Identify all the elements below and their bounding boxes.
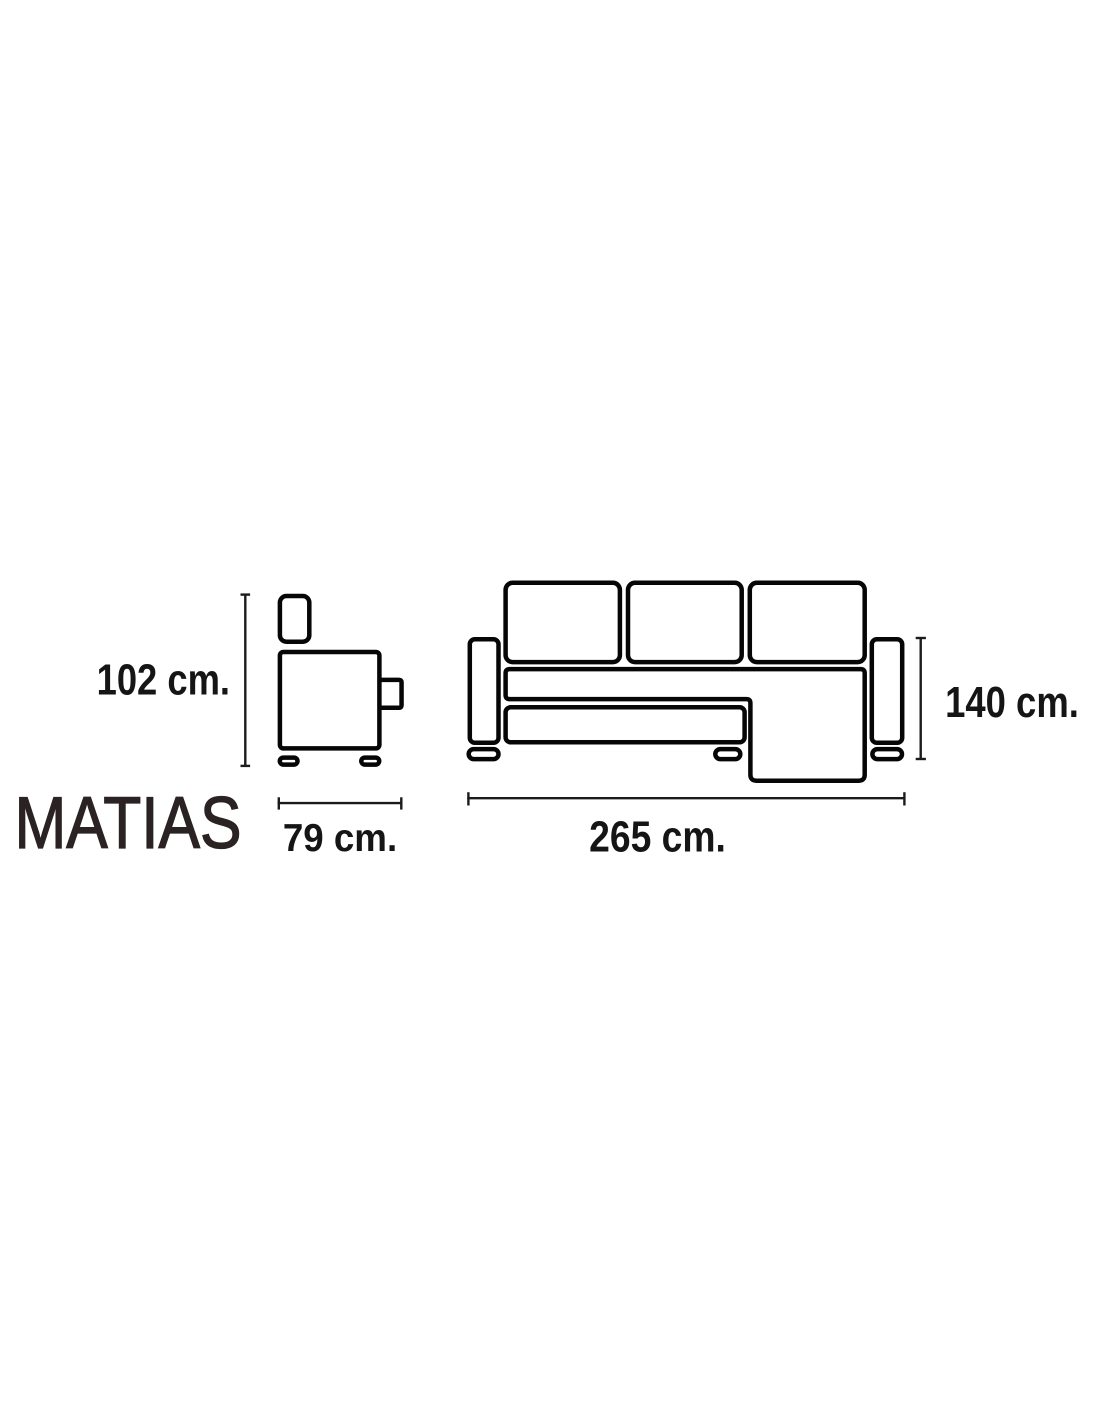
svg-text:MATIAS: MATIAS — [14, 783, 241, 864]
svg-text:102 cm.: 102 cm. — [97, 657, 230, 705]
svg-text:79 cm.: 79 cm. — [283, 816, 397, 859]
svg-text:140 cm.: 140 cm. — [945, 678, 1079, 727]
svg-text:265 cm.: 265 cm. — [589, 812, 726, 861]
